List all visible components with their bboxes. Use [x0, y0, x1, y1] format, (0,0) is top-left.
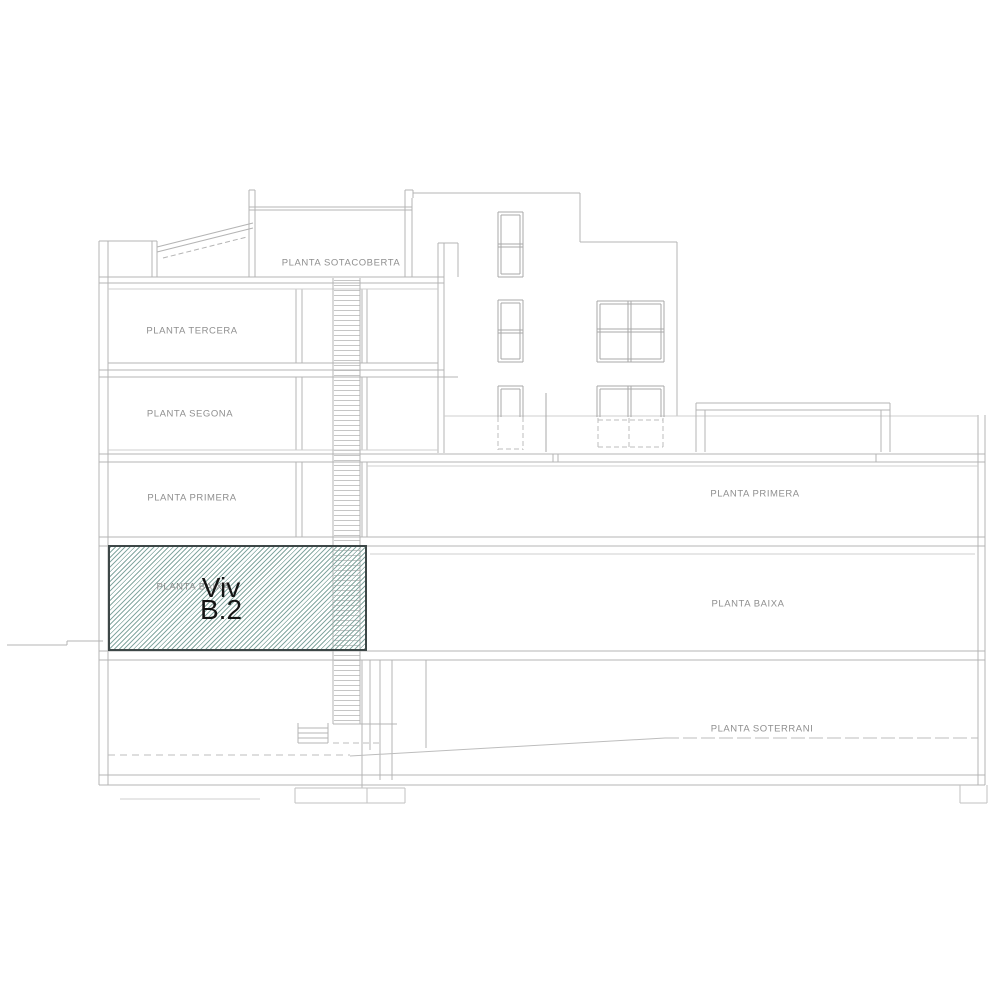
floor-label-planta-primera-right: PLANTA PRIMERA: [710, 489, 799, 500]
secondary-lines: [108, 289, 978, 799]
pergola: [696, 403, 890, 452]
section-drawing-canvas: PLANTA SOTACOBERTA PLANTA TERCERA PLANTA…: [0, 0, 1000, 1000]
footings: [295, 785, 987, 803]
floor-label-planta-soterrani: PLANTA SOTERRANI: [711, 724, 814, 735]
ground-lines: [108, 738, 978, 756]
floor-label-planta-baixa-right: PLANTA BAIXA: [712, 599, 785, 610]
floor-label-planta-sotacoberta: PLANTA SOTACOBERTA: [282, 258, 400, 269]
floor-label-planta-tercera: PLANTA TERCERA: [146, 326, 237, 337]
unit-b2-label-line2: B.2: [171, 599, 271, 621]
walls-and-slabs: [7, 190, 985, 785]
unit-b2-label: Viv B.2: [171, 577, 271, 621]
hidden-window-lines: [498, 417, 663, 450]
sloped-roof: [157, 223, 253, 258]
floor-label-planta-primera-left: PLANTA PRIMERA: [147, 493, 236, 504]
floor-label-planta-segona: PLANTA SEGONA: [147, 409, 233, 420]
